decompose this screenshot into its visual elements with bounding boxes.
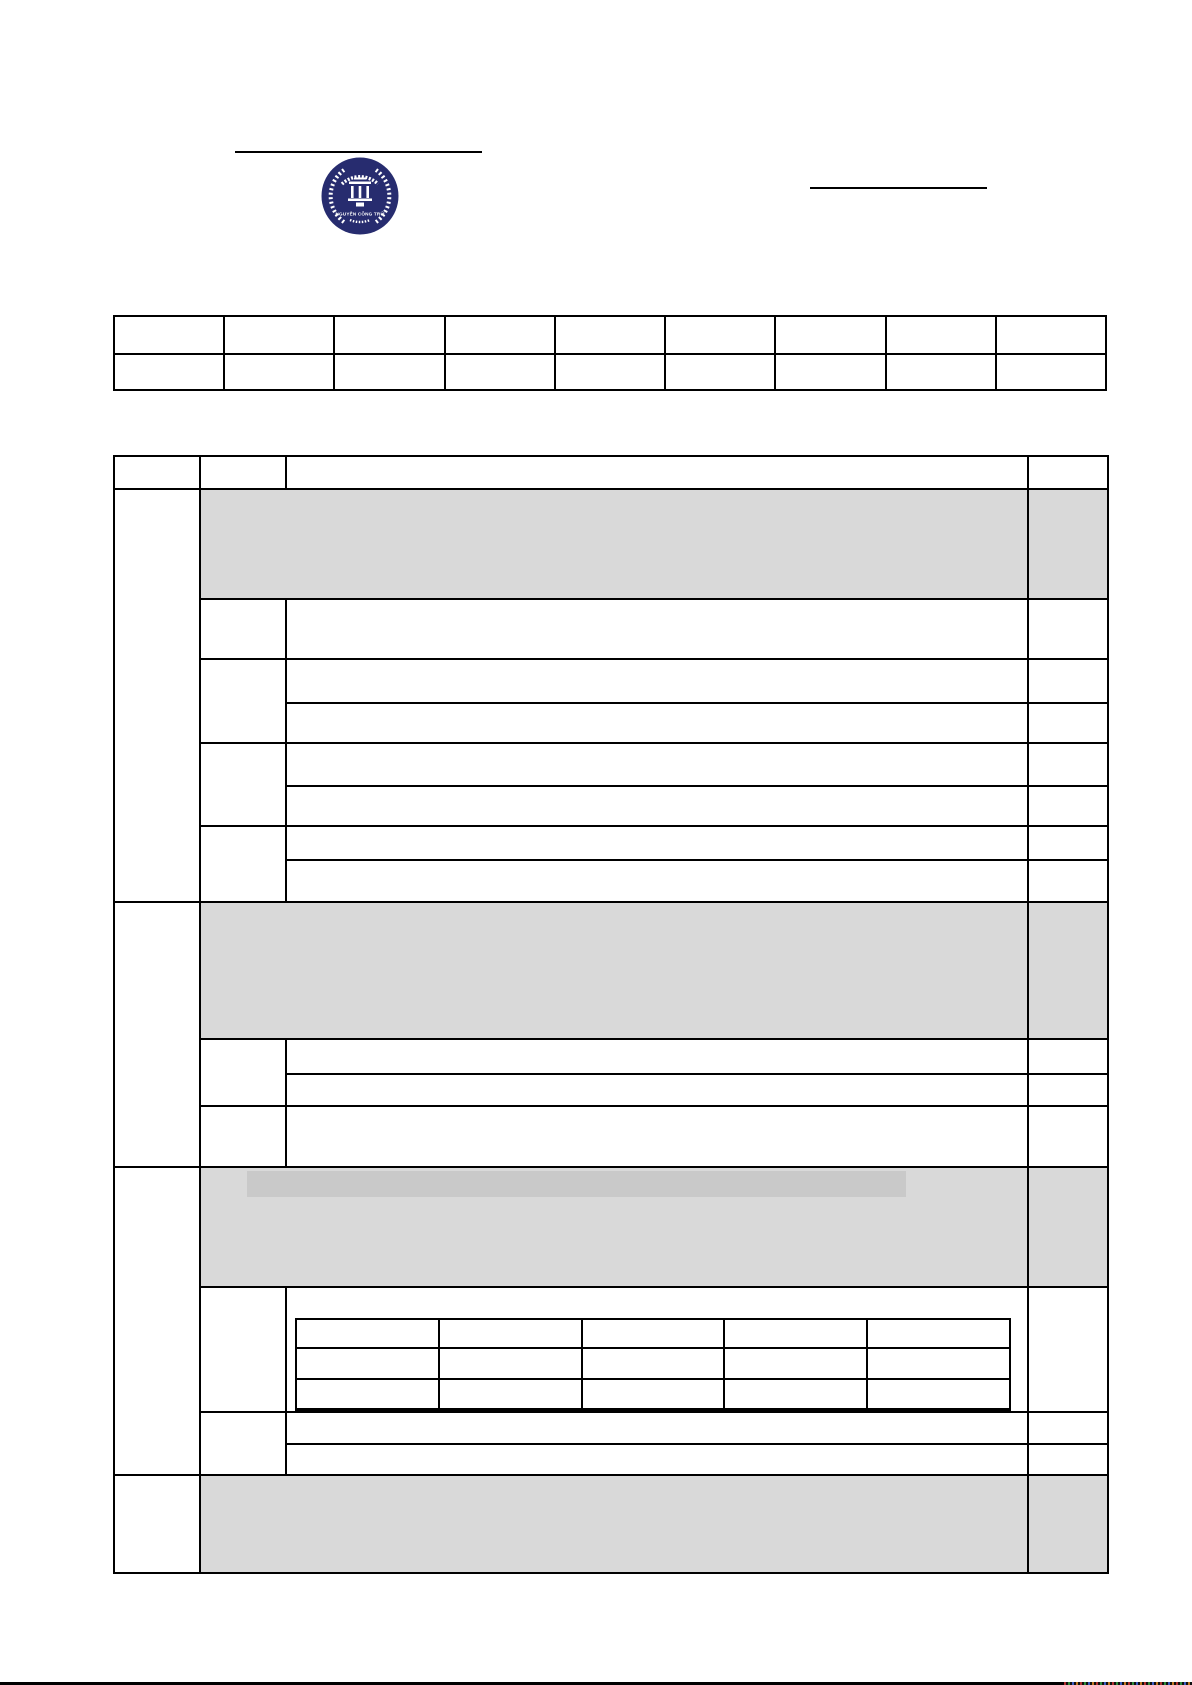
section-1-label-cell: [114, 489, 200, 902]
content-cell: [286, 1412, 1028, 1444]
side-cell: [1028, 1287, 1108, 1412]
table-row: [114, 316, 1106, 354]
table-cell: [555, 316, 665, 354]
content-cell: [286, 1039, 1028, 1074]
table-row: [114, 1039, 1108, 1074]
inner-cell: [724, 1348, 867, 1379]
shaded-band-cell: [200, 902, 1028, 1039]
side-cell: [1028, 1039, 1108, 1074]
table-row: [114, 599, 1108, 659]
table-cell: [445, 354, 555, 390]
shaded-band-cell: [200, 1167, 1028, 1287]
inner-cell: [867, 1319, 1010, 1348]
table-cell: [334, 354, 444, 390]
highlight-bar: [247, 1171, 906, 1197]
header-cell: [114, 456, 200, 489]
table-row: [114, 743, 1108, 786]
inner-cell: [867, 1348, 1010, 1379]
inner-cell: [724, 1319, 867, 1348]
table-row: [114, 659, 1108, 703]
table-row: [114, 1475, 1108, 1573]
table-row: [296, 1319, 1010, 1348]
content-cell: [286, 1074, 1028, 1106]
content-cell: [286, 659, 1028, 703]
inner-table: [295, 1318, 1011, 1411]
side-cell: [1028, 1074, 1108, 1106]
table-cell: [445, 316, 555, 354]
shaded-band-side-cell: [1028, 902, 1108, 1039]
content-cell: [286, 786, 1028, 826]
table-cell: [775, 354, 885, 390]
top-info-table: [113, 315, 1107, 391]
inner-cell: [439, 1348, 582, 1379]
shaded-band-side-cell: [1028, 1475, 1108, 1573]
shaded-band-cell: [200, 489, 1028, 599]
table-row: [114, 456, 1108, 489]
shaded-band-side-cell: [1028, 489, 1108, 599]
header-cell: [286, 456, 1028, 489]
table-row: [114, 1167, 1108, 1287]
table-row: [114, 826, 1108, 860]
side-cell: [1028, 599, 1108, 659]
side-cell: [1028, 860, 1108, 902]
inner-cell: [582, 1379, 725, 1409]
table-row: [296, 1348, 1010, 1379]
content-cell: [286, 703, 1028, 743]
header-underline-right: [810, 187, 987, 189]
inner-cell: [296, 1379, 439, 1409]
main-form-table: [113, 455, 1109, 1574]
logo-school-name: NGUYỄN CÔNG TRỨ: [336, 210, 385, 217]
shaded-band-side-cell: [1028, 1167, 1108, 1287]
table-cell: [996, 316, 1106, 354]
table-cell: [996, 354, 1106, 390]
table-row: [114, 1106, 1108, 1167]
side-cell: [1028, 786, 1108, 826]
table-row: [296, 1379, 1010, 1409]
table-cell: [886, 316, 996, 354]
table-cell: [114, 316, 224, 354]
header-cell: [200, 456, 286, 489]
table-row: [114, 1287, 1108, 1412]
table-cell: [775, 316, 885, 354]
table-row: [114, 902, 1108, 1039]
item-label-cell: [200, 1106, 286, 1167]
inner-cell: [439, 1379, 582, 1409]
inner-cell: [724, 1379, 867, 1409]
side-cell: [1028, 703, 1108, 743]
item-label-cell: [200, 1039, 286, 1106]
table-cell: [224, 316, 334, 354]
table-cell: [886, 354, 996, 390]
side-cell: [1028, 1444, 1108, 1475]
table-cell: [224, 354, 334, 390]
school-logo: NGUYỄN CÔNG TRỨ: [321, 157, 399, 235]
table-cell: [114, 354, 224, 390]
item-label-cell: [200, 826, 286, 902]
inner-cell: [582, 1319, 725, 1348]
inner-cell: [867, 1379, 1010, 1409]
inner-cell: [439, 1319, 582, 1348]
table-cell: [665, 316, 775, 354]
content-cell: [286, 1444, 1028, 1475]
content-cell: [286, 599, 1028, 659]
side-cell: [1028, 743, 1108, 786]
content-cell: [286, 826, 1028, 860]
side-cell: [1028, 1106, 1108, 1167]
content-cell-with-inner-table: [286, 1287, 1028, 1412]
inner-cell: [296, 1348, 439, 1379]
item-label-cell: [200, 1412, 286, 1475]
item-label-cell: [200, 659, 286, 743]
item-label-cell: [200, 599, 286, 659]
table-row: [114, 354, 1106, 390]
table-row: [114, 489, 1108, 599]
content-cell: [286, 1106, 1028, 1167]
content-cell: [286, 743, 1028, 786]
content-cell: [286, 860, 1028, 902]
shaded-band-cell: [200, 1475, 1028, 1573]
section-2-label-cell: [114, 902, 200, 1167]
document-page: NGUYỄN CÔNG TRỨ: [0, 0, 1192, 1685]
table-row: [114, 1412, 1108, 1444]
table-cell: [555, 354, 665, 390]
side-cell: [1028, 826, 1108, 860]
header-underline-left: [235, 151, 482, 153]
header-cell: [1028, 456, 1108, 489]
item-label-cell: [200, 743, 286, 826]
section-4-label-cell: [114, 1475, 200, 1573]
table-cell: [665, 354, 775, 390]
side-cell: [1028, 1412, 1108, 1444]
item-label-cell: [200, 1287, 286, 1412]
side-cell: [1028, 659, 1108, 703]
inner-cell: [296, 1319, 439, 1348]
table-cell: [334, 316, 444, 354]
inner-cell: [582, 1348, 725, 1379]
section-3-label-cell: [114, 1167, 200, 1475]
